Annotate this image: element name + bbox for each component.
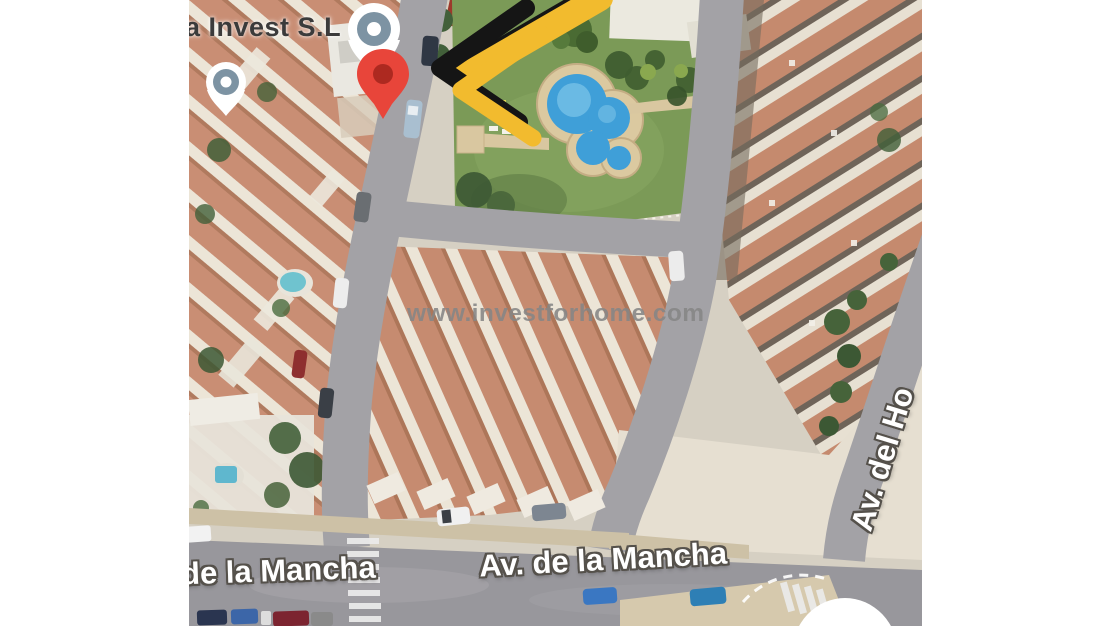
map-viewport[interactable]: a Invest S.L www.investforhome.com de la… [189, 0, 922, 626]
screenshot-canvas: a Invest S.L www.investforhome.com de la… [0, 0, 1110, 626]
road-connector [369, 216, 689, 240]
satellite-map[interactable] [189, 0, 922, 626]
